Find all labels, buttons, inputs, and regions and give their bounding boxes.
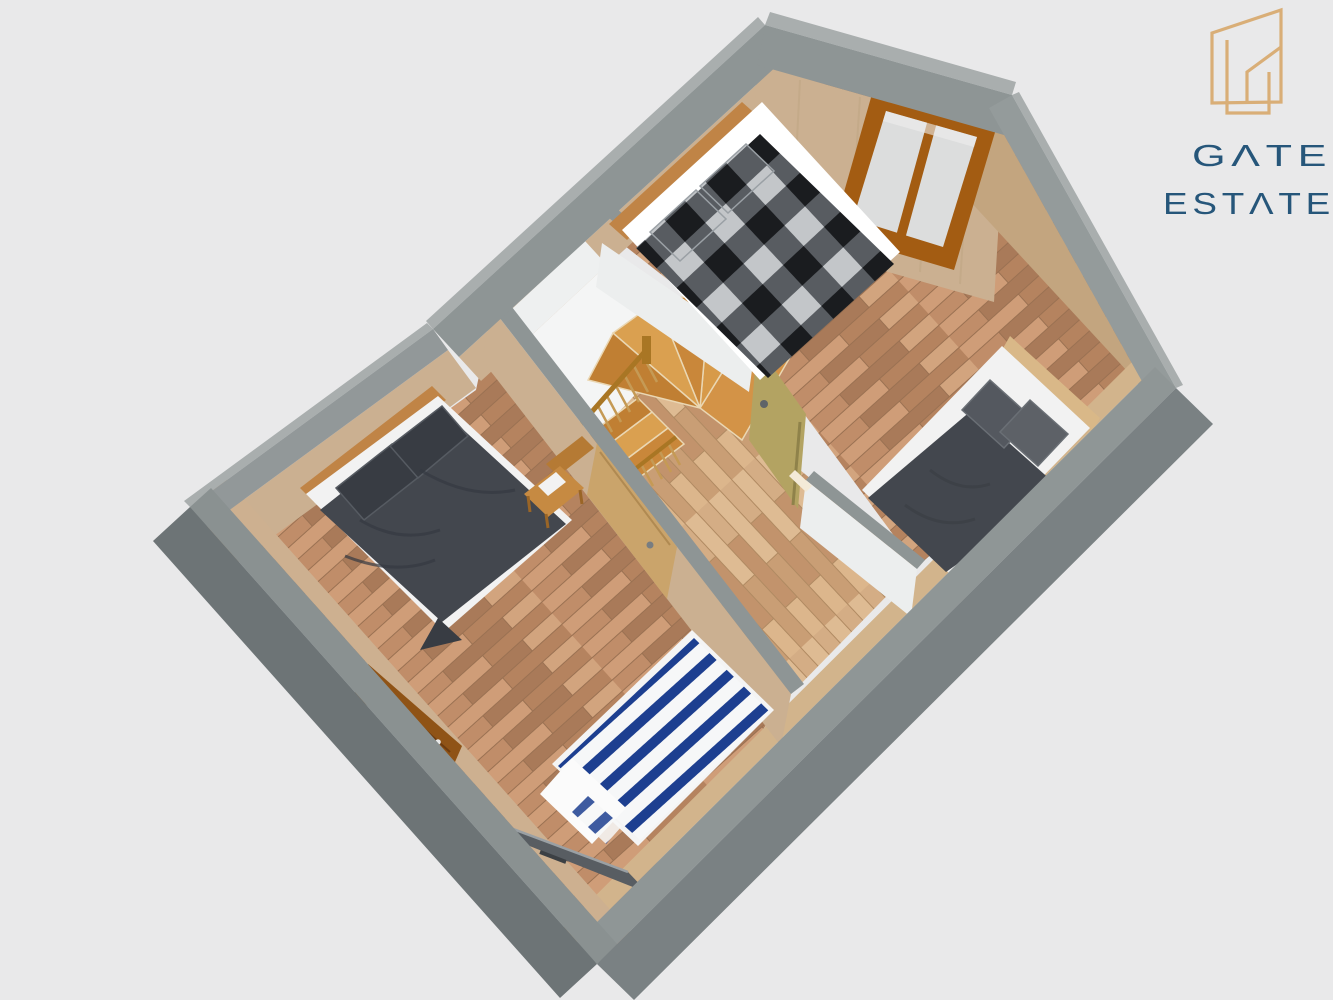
railing-newel-post (642, 336, 651, 364)
door-handle-left (647, 542, 654, 549)
brand-name-line2: ESTΛTE (1163, 186, 1333, 221)
door-handle-right (760, 400, 768, 408)
floor-plan-render: GΛTE ESTΛTE (0, 0, 1333, 1000)
brand-name-line1: GΛTE (1192, 138, 1332, 173)
